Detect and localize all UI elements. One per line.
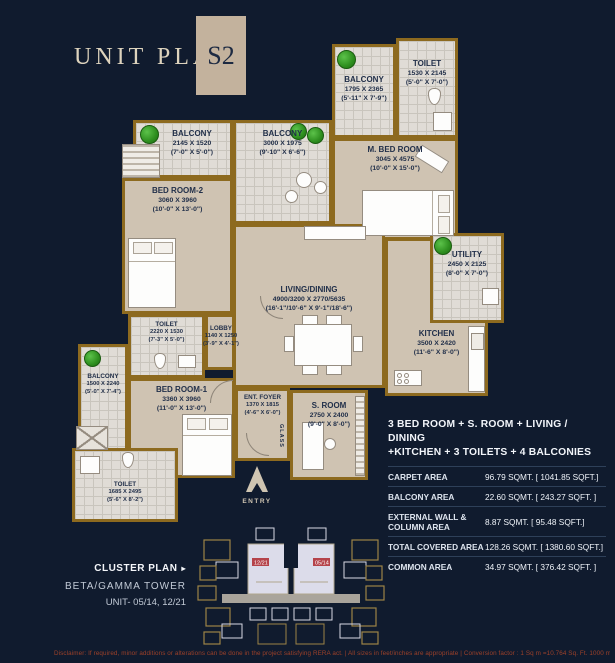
room-balcony-top: BALCONY 1795 X 2365 (5'-11" X 7'-9") [332, 44, 396, 138]
summary-row: CARPET AREA 96.79 SQMT. [ 1041.85 SQFT.] [388, 466, 606, 486]
chair-icon [302, 365, 318, 375]
disclaimer-text: Disclaimer: If required, minor additions… [54, 650, 610, 657]
patio-chair-icon [314, 181, 327, 194]
room-toilet-mid: TOILET 2220 X 1530 (7'-3" X 5'-0") [128, 314, 205, 378]
shower-icon [433, 112, 452, 131]
cluster-plan-link[interactable]: CLUSTER PLAN▸ [52, 563, 186, 574]
area-value: 96.79 SQMT. [ 1041.85 SQFT.] [485, 472, 606, 482]
unit-tag: 05/14 [315, 561, 329, 567]
area-label: EXTERNAL WALL & COLUMN AREA [388, 512, 485, 532]
tower-name: BETA/GAMMA TOWER [52, 581, 186, 592]
shaft-icon [76, 426, 108, 450]
summary-row: TOTAL COVERED AREA 128.26 SQMT. [ 1380.6… [388, 536, 606, 556]
door-arc-icon [246, 433, 269, 456]
chair-icon [353, 336, 363, 352]
room-toilet-bottom: TOILET 1685 X 2495 (5'-6" X 8'-2") [72, 448, 178, 522]
area-label: BALCONY AREA [388, 492, 485, 502]
unit-configuration-line1: 3 BED ROOM + S. ROOM + LIVING / DINING [388, 418, 606, 446]
unit-numbers: UNIT- 05/14, 12/21 [52, 597, 186, 608]
cluster-plan-thumbnail: 12/21 05/14 [196, 522, 386, 661]
unit-configuration-line2: +KITCHEN + 3 TOILETS + 4 BALCONIES [388, 446, 606, 460]
unit-tag: 12/21 [254, 561, 268, 567]
summary-row: BALCONY AREA 22.60 SQMT. [ 243.27 SQFT. … [388, 486, 606, 506]
area-value: 8.87 SQMT. [ 95.48 SQFT.] [485, 517, 606, 527]
cluster-plan-section: CLUSTER PLAN▸ BETA/GAMMA TOWER UNIT- 05/… [52, 563, 186, 608]
entry-arrow-icon [246, 466, 268, 492]
area-label: COMMON AREA [388, 562, 485, 572]
area-summary-panel: 3 BED ROOM + S. ROOM + LIVING / DINING +… [388, 418, 606, 576]
summary-row: COMMON AREA 34.97 SQMT. [ 376.42 SQFT. ] [388, 556, 606, 576]
chair-icon [326, 365, 342, 375]
area-label: CARPET AREA [388, 472, 485, 482]
desk-icon [302, 422, 324, 470]
arrow-right-icon: ▸ [181, 564, 186, 573]
area-value: 128.26 SQMT. [ 1380.60 SQFT.] [485, 542, 606, 552]
sink-icon [178, 355, 196, 368]
patio-table-icon [296, 172, 312, 188]
entry-label: ENTRY [235, 498, 279, 505]
chair-icon [284, 336, 294, 352]
room-lobby: LOBBY 1140 X 1250 (3'-9" X 4'-1") [205, 314, 235, 370]
summary-row: EXTERNAL WALL & COLUMN AREA 8.87 SQMT. [… [388, 506, 606, 536]
room-dim-mm: 3060 X 3960 [125, 196, 230, 205]
area-label: TOTAL COVERED AREA [388, 542, 485, 552]
room-balcony-mid-top: BALCONY 3000 X 1975 (9'-10" X 6'-6") [233, 120, 332, 224]
hob-icon [394, 370, 422, 386]
bed-icon [182, 414, 232, 476]
area-value: 34.97 SQMT. [ 376.42 SQFT. ] [485, 562, 606, 572]
chair-icon [326, 315, 342, 325]
bed-icon [128, 238, 176, 308]
room-dim-ft: (10'-0" X 13'-0") [125, 205, 230, 214]
area-value: 22.60 SQMT. [ 243.27 SQFT. ] [485, 492, 606, 502]
brochure-page: UNIT PLAN S2 BED ROOM-2 3060 X 3960 (10'… [0, 0, 615, 663]
chair-icon [302, 315, 318, 325]
room-name: BED ROOM-2 [125, 186, 230, 196]
patio-chair-icon [285, 190, 298, 203]
glass-door-label: GLASS [278, 424, 284, 448]
chair-icon [324, 438, 336, 450]
dining-table-icon [294, 324, 352, 366]
